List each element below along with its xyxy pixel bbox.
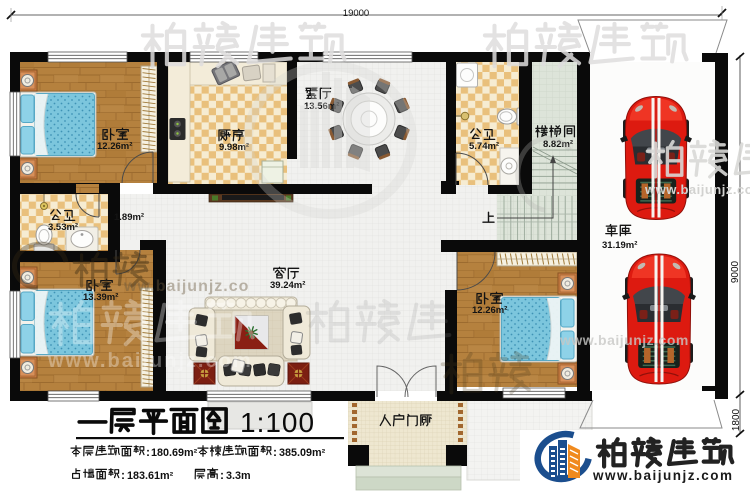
- svg-text::: :: [121, 468, 125, 482]
- svg-text::: :: [146, 445, 150, 459]
- svg-text::: :: [273, 445, 277, 459]
- svg-text:www.baijunjz.com: www.baijunjz.com: [559, 332, 689, 348]
- svg-text:12.26m²: 12.26m²: [472, 305, 507, 316]
- svg-text:1800: 1800: [731, 408, 742, 431]
- svg-text:19000: 19000: [343, 8, 369, 19]
- svg-text:31.19m²: 31.19m²: [602, 240, 637, 251]
- svg-text:3.53m²: 3.53m²: [48, 222, 78, 233]
- svg-text:1.89m²: 1.89m²: [114, 212, 144, 223]
- svg-text:39.24m²: 39.24m²: [270, 280, 305, 291]
- svg-text:www.baijunjz.com: www.baijunjz.com: [644, 182, 750, 197]
- svg-text:ww.baijunjz.co: ww.baijunjz.co: [123, 278, 249, 295]
- svg-text:9000: 9000: [730, 260, 741, 283]
- svg-text:180.69m²: 180.69m²: [151, 447, 198, 459]
- svg-text:12.26m²: 12.26m²: [97, 141, 132, 152]
- svg-text:183.61m²: 183.61m²: [127, 470, 174, 482]
- svg-text:3.3m: 3.3m: [226, 470, 251, 482]
- svg-text:www.baijunjz.com: www.baijunjz.com: [592, 468, 734, 483]
- svg-text:1:100: 1:100: [240, 407, 315, 438]
- svg-text:www.baijunjz.com: www.baijunjz.com: [47, 350, 253, 372]
- svg-text:385.09m²: 385.09m²: [279, 447, 326, 459]
- svg-text::: :: [220, 468, 224, 482]
- svg-text:5.74m²: 5.74m²: [469, 141, 499, 152]
